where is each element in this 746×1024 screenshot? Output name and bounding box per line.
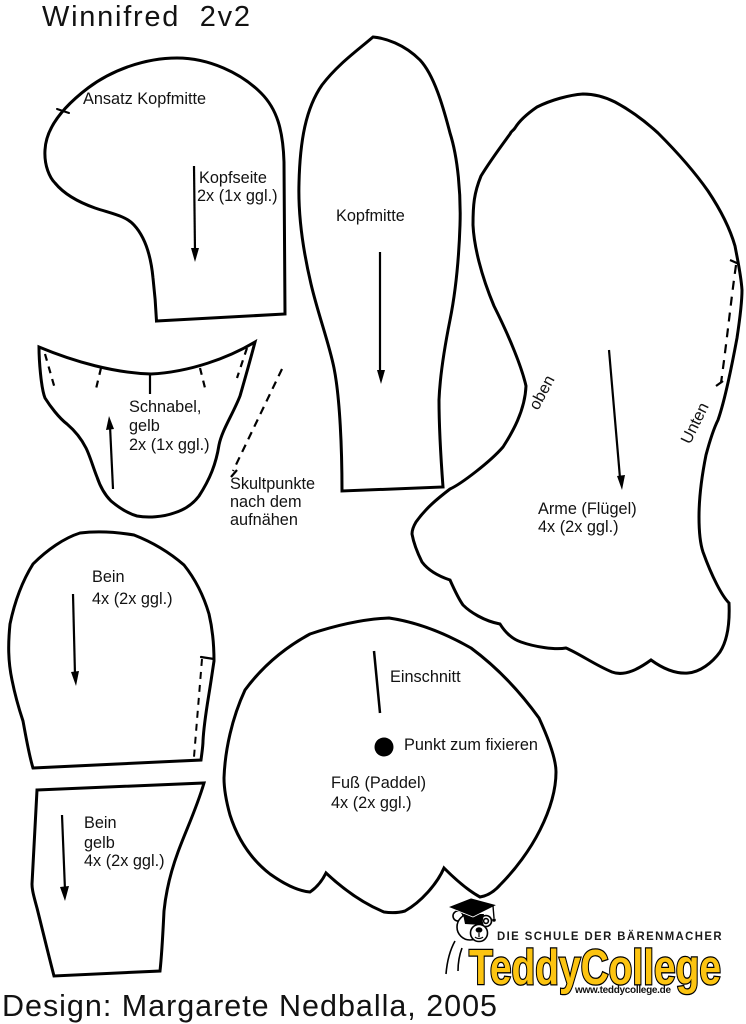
- svg-text:Kopfseite: Kopfseite: [199, 169, 267, 187]
- svg-text:Punkt zum fixieren: Punkt zum fixieren: [404, 736, 538, 754]
- svg-text:www.teddycollege.de: www.teddycollege.de: [574, 985, 671, 996]
- svg-text:4x (2x ggl.): 4x (2x ggl.): [84, 852, 165, 870]
- svg-text:Winnifred 2v2: Winnifred 2v2: [42, 1, 250, 33]
- svg-text:aufnähen: aufnähen: [230, 511, 298, 529]
- svg-text:Fuß (Paddel): Fuß (Paddel): [331, 774, 426, 792]
- svg-text:Ansatz Kopfmitte: Ansatz Kopfmitte: [83, 90, 206, 108]
- svg-text:gelb: gelb: [129, 417, 160, 435]
- svg-text:2x (1x ggl.): 2x (1x ggl.): [197, 187, 278, 205]
- svg-text:gelb: gelb: [84, 834, 115, 852]
- svg-text:Bein: Bein: [92, 568, 125, 586]
- svg-text:nach dem: nach dem: [230, 493, 302, 511]
- svg-text:4x (2x ggl.): 4x (2x ggl.): [538, 518, 619, 536]
- svg-text:4x (2x ggl.): 4x (2x ggl.): [92, 590, 173, 608]
- svg-text:2x (1x ggl.): 2x (1x ggl.): [129, 436, 210, 454]
- svg-text:4x (2x ggl.): 4x (2x ggl.): [331, 794, 412, 812]
- svg-text:Skultpunkte: Skultpunkte: [230, 475, 315, 493]
- svg-text:Design: Margarete Nedballa, 20: Design: Margarete Nedballa, 2005: [2, 989, 497, 1023]
- svg-text:Schnabel,: Schnabel,: [129, 398, 201, 416]
- svg-text:Bein: Bein: [84, 814, 117, 832]
- svg-text:Einschnitt: Einschnitt: [390, 668, 461, 686]
- svg-text:Arme (Flügel): Arme (Flügel): [538, 500, 637, 518]
- svg-text:Kopfmitte: Kopfmitte: [336, 207, 405, 225]
